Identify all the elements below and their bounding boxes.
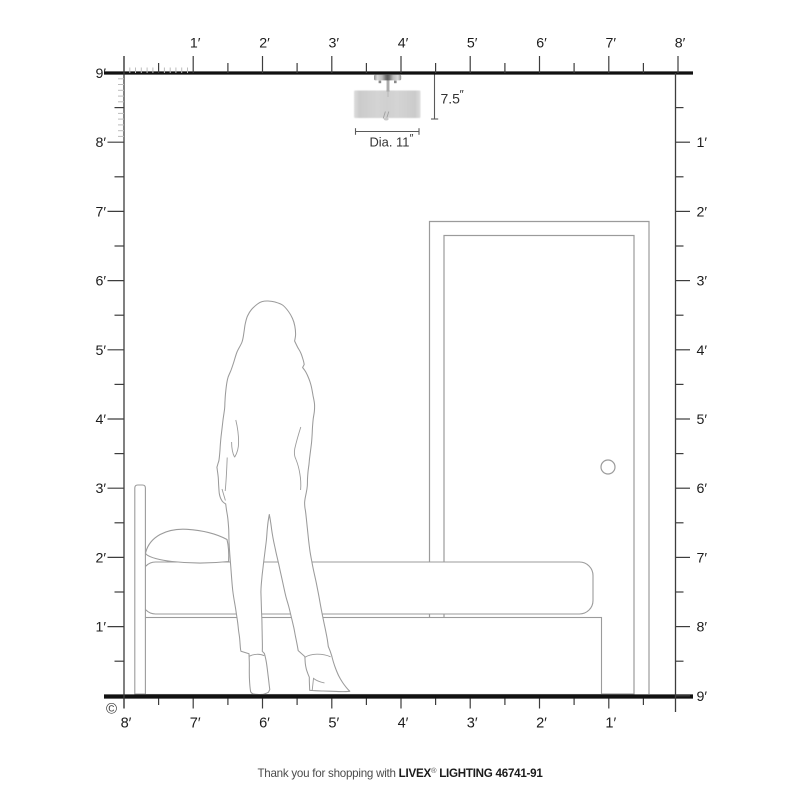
svg-text:1′: 1′ [95, 620, 106, 636]
svg-text:3′: 3′ [95, 481, 106, 497]
svg-text:1′: 1′ [605, 716, 616, 732]
svg-text:2′: 2′ [697, 204, 708, 220]
svg-text:6′: 6′ [536, 36, 547, 52]
svg-text:9′: 9′ [95, 66, 106, 82]
svg-text:©: © [106, 701, 117, 718]
svg-text:6′: 6′ [697, 481, 708, 497]
svg-text:2′: 2′ [95, 550, 106, 566]
svg-text:1′: 1′ [190, 36, 201, 52]
svg-text:2′: 2′ [536, 716, 547, 732]
svg-text:5′: 5′ [697, 412, 708, 428]
svg-text:3′: 3′ [329, 36, 340, 52]
svg-text:Thank you for shopping with LI: Thank you for shopping with LIVEX® LIGHT… [257, 766, 543, 780]
svg-text:Dia. 11: Dia. 11 [370, 135, 410, 150]
svg-text:3′: 3′ [467, 716, 478, 732]
svg-text:8′: 8′ [121, 716, 132, 732]
svg-text:5′: 5′ [467, 36, 478, 52]
svg-text:7′: 7′ [190, 716, 201, 732]
svg-text:5′: 5′ [95, 343, 106, 359]
svg-text:7′: 7′ [95, 204, 106, 220]
svg-text:8′: 8′ [697, 620, 708, 636]
svg-text:4′: 4′ [95, 412, 106, 428]
svg-text:4′: 4′ [398, 36, 409, 52]
svg-text:7′: 7′ [606, 36, 617, 52]
svg-text:4′: 4′ [398, 716, 409, 732]
svg-text:7.5: 7.5 [441, 91, 461, 107]
svg-text:1′: 1′ [697, 135, 708, 151]
svg-text:4′: 4′ [697, 343, 708, 359]
svg-text:6′: 6′ [95, 274, 106, 290]
svg-text:5′: 5′ [328, 716, 339, 732]
svg-text:8′: 8′ [675, 36, 686, 52]
svg-text:6′: 6′ [259, 716, 270, 732]
svg-text:3′: 3′ [697, 274, 708, 290]
svg-text:9′: 9′ [697, 689, 708, 705]
svg-text:7′: 7′ [697, 550, 708, 566]
svg-text:2′: 2′ [259, 36, 270, 52]
svg-text:″: ″ [410, 133, 414, 145]
svg-text:8′: 8′ [95, 135, 106, 151]
